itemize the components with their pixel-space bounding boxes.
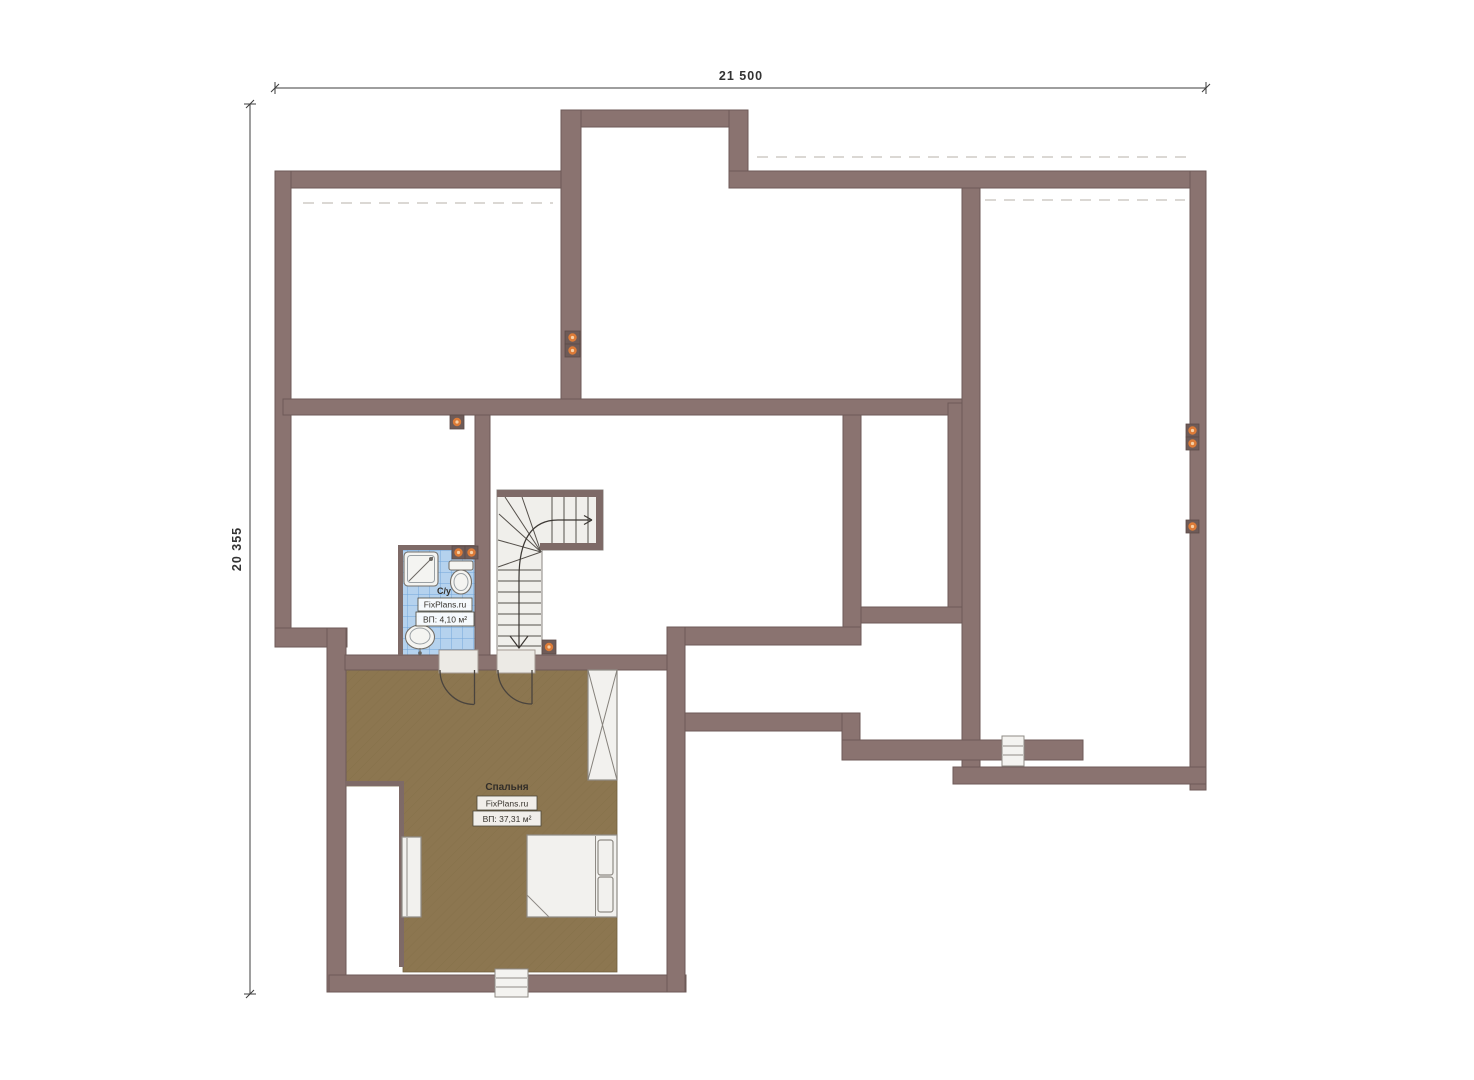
wall-segment xyxy=(667,627,861,645)
wall-segment xyxy=(842,740,1083,760)
wall-segment xyxy=(729,171,1206,188)
dimension-top: 21 500 xyxy=(271,69,1210,94)
wall-segment xyxy=(667,627,685,992)
wall-segment xyxy=(476,655,498,670)
wall-segment xyxy=(327,628,346,992)
power-socket-icon xyxy=(542,640,556,654)
wall-segment xyxy=(953,767,1206,784)
wall-segment xyxy=(561,110,748,127)
bedroom-area: ВП: 37,31 м² xyxy=(483,814,532,824)
wall-segment xyxy=(962,188,980,767)
window-icon xyxy=(1002,736,1024,766)
dimension-width-label: 21 500 xyxy=(719,69,763,83)
wall-segment-thin xyxy=(398,545,403,655)
floor-plan-page: 21 500 20 355 С/у FixPlans.ru ВП: 4,10 м… xyxy=(0,0,1474,1080)
dresser-icon xyxy=(402,837,421,917)
floor-plan-drawing: 21 500 20 355 С/у FixPlans.ru ВП: 4,10 м… xyxy=(0,0,1474,1080)
bed-icon xyxy=(527,835,617,917)
shower-icon xyxy=(404,552,438,586)
door-threshold xyxy=(439,650,478,673)
dimension-height-label: 20 355 xyxy=(230,527,244,571)
wall-segment xyxy=(1190,171,1206,790)
bathroom-area: ВП: 4,10 м² xyxy=(423,614,467,624)
power-socket-icon xyxy=(1186,424,1199,437)
power-socket-icon xyxy=(450,415,464,429)
wall-segment-thin xyxy=(497,490,603,497)
power-socket-icon xyxy=(1186,520,1199,533)
dimension-left: 20 355 xyxy=(230,100,256,998)
wall-segment-thin xyxy=(596,490,603,550)
wall-segment xyxy=(561,110,581,415)
power-socket-icon xyxy=(565,331,580,344)
wall-segment xyxy=(685,713,848,731)
wall-segment xyxy=(345,655,440,670)
wall-segment xyxy=(283,399,962,415)
bedroom-brand: FixPlans.ru xyxy=(486,798,529,808)
power-socket-icon xyxy=(565,344,580,357)
power-socket-icon xyxy=(1186,437,1199,450)
bedroom-name: Спальня xyxy=(485,782,528,793)
wall-segment xyxy=(533,655,667,670)
door-threshold xyxy=(497,650,535,673)
staircase xyxy=(497,490,603,655)
power-socket-icon xyxy=(465,546,478,559)
toilet-icon xyxy=(449,561,473,594)
wall-segment xyxy=(948,403,962,623)
wardrobe-icon xyxy=(588,670,617,780)
wall-segment xyxy=(275,171,577,188)
bathroom-brand: FixPlans.ru xyxy=(424,600,467,610)
window-icon xyxy=(495,969,528,997)
bathroom-name: С/у xyxy=(437,586,451,596)
wall-segment xyxy=(843,415,861,645)
wall-segment xyxy=(475,415,490,655)
wall-segment-thin xyxy=(345,781,403,786)
wall-segment-thin xyxy=(540,543,603,550)
wall-segment xyxy=(861,607,962,623)
power-socket-icon xyxy=(452,546,465,559)
